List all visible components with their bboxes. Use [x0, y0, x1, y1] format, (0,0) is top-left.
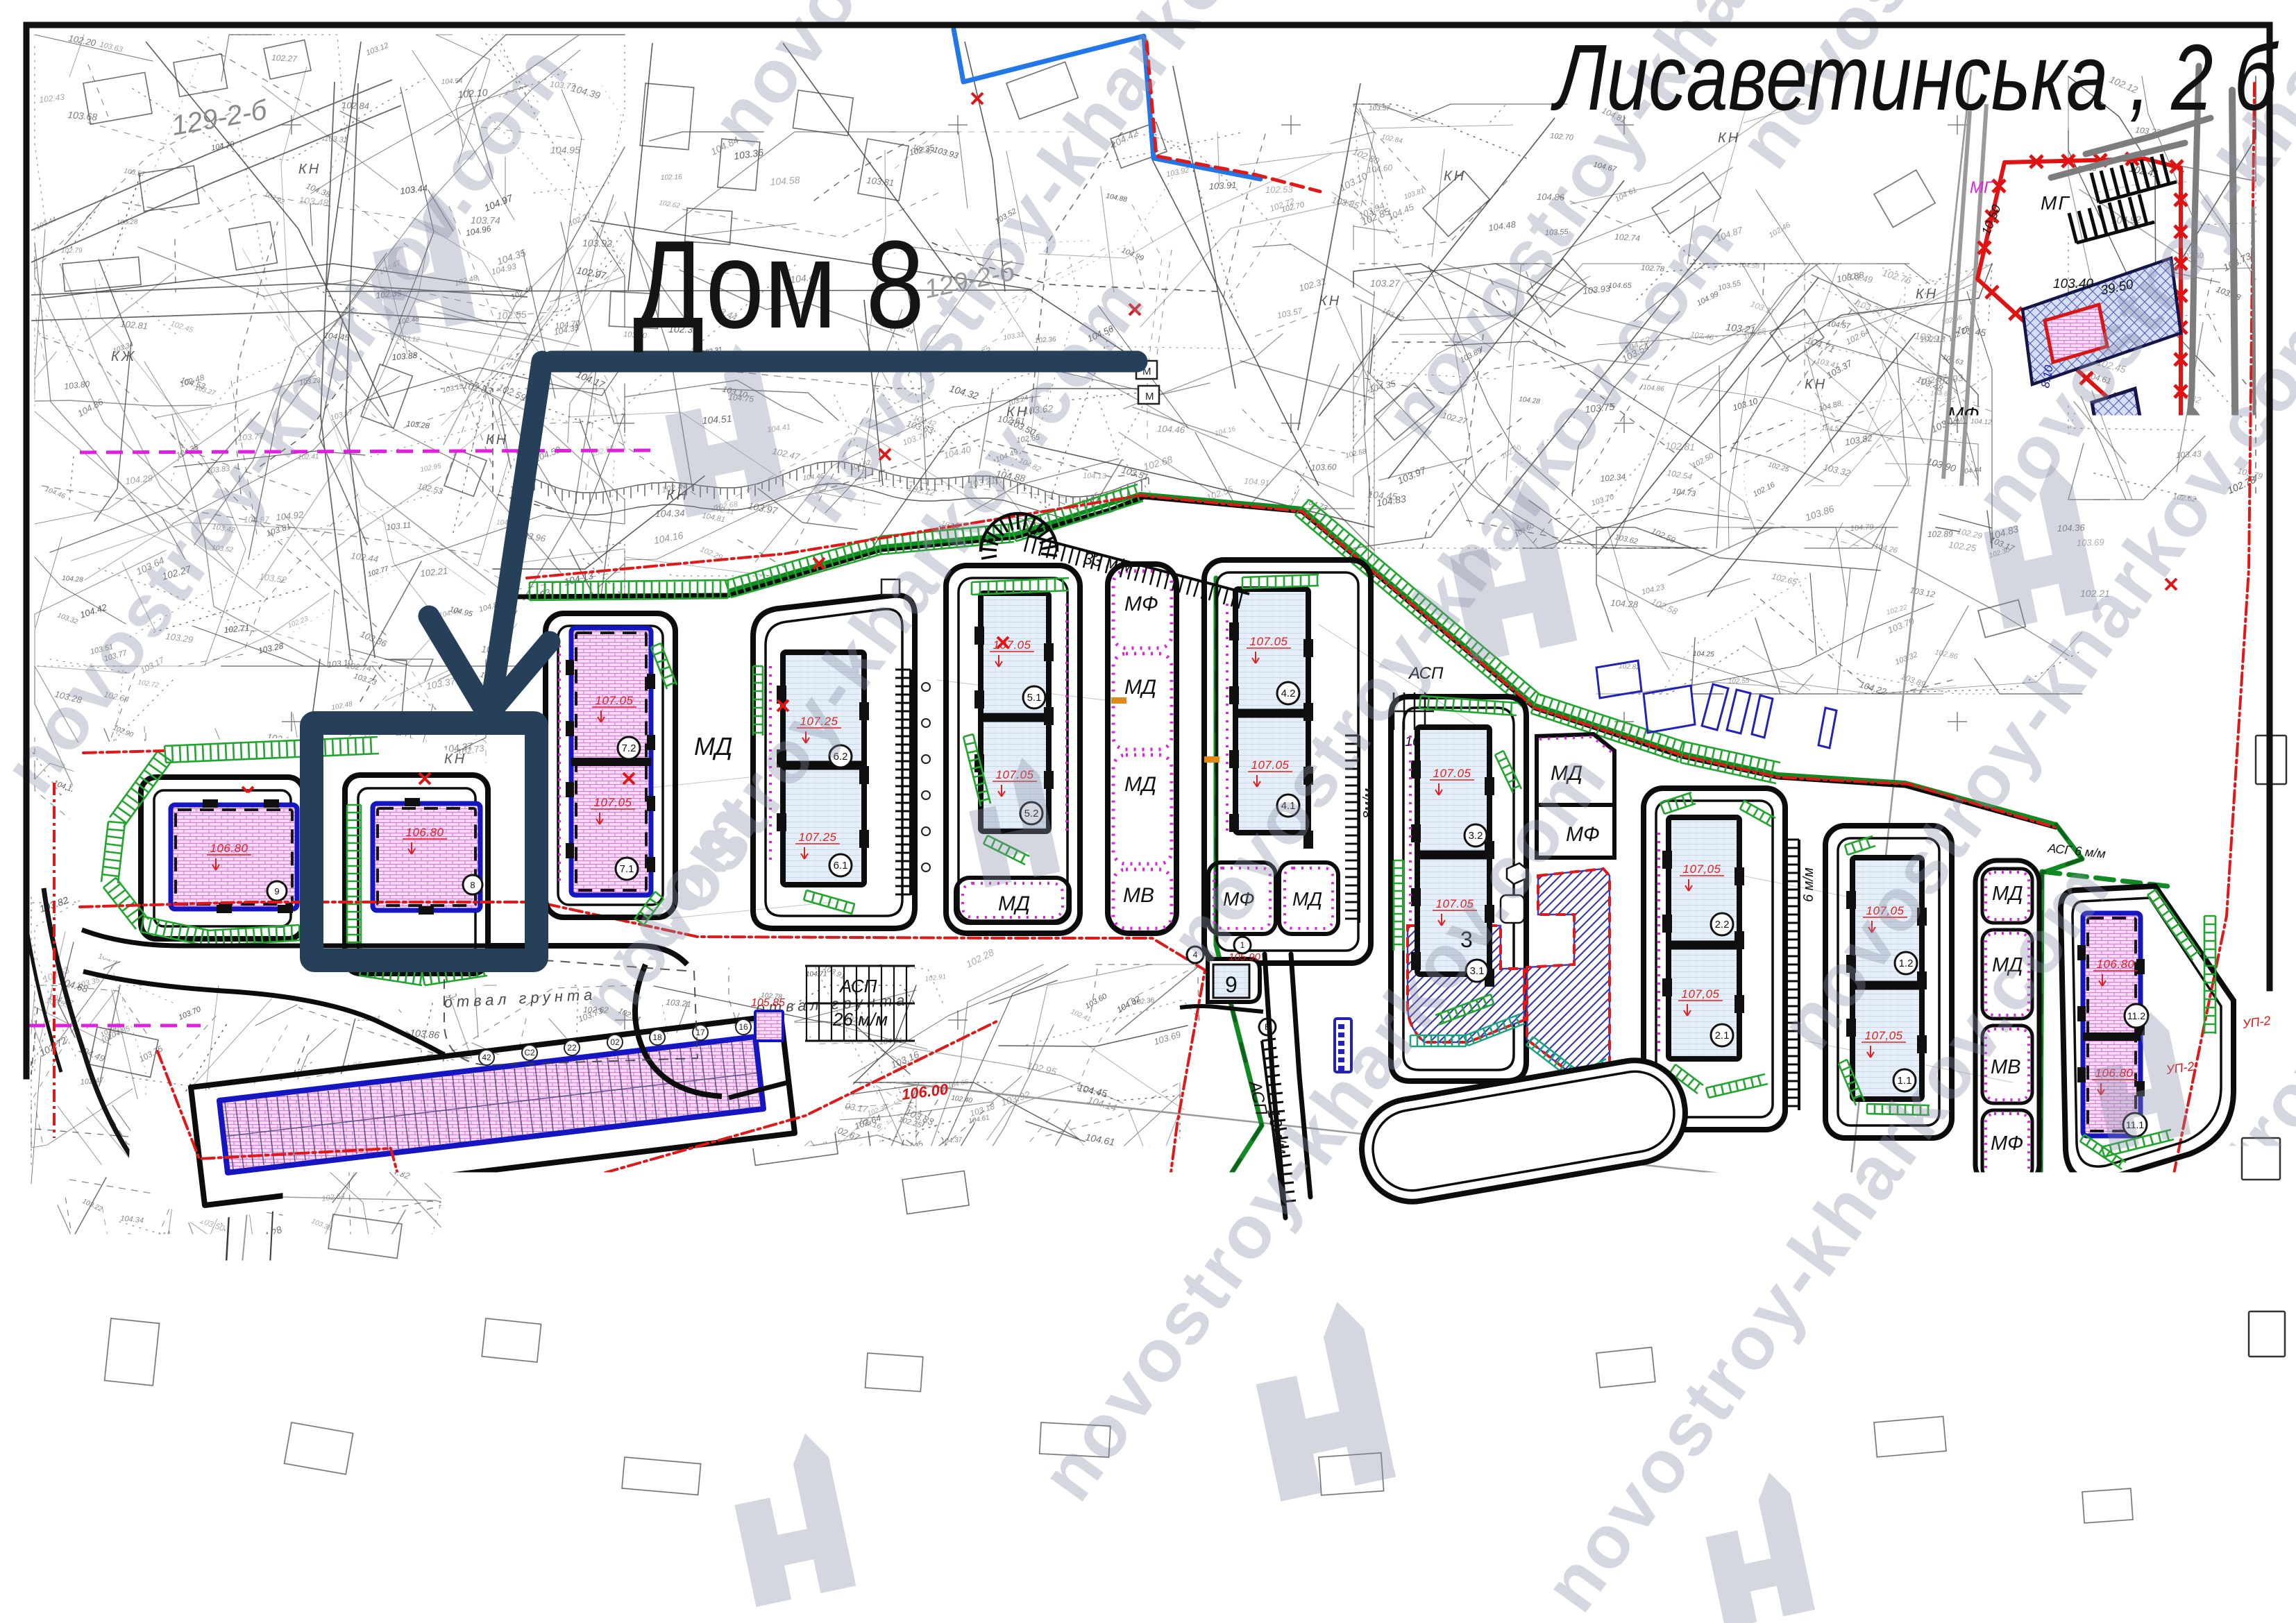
svg-text:МФ: МФ — [1991, 1132, 2023, 1155]
svg-text:Дом 8: Дом 8 — [633, 215, 925, 355]
svg-text:17: 17 — [695, 1028, 705, 1037]
svg-text:КН: КН — [1916, 287, 1938, 302]
svg-text:8: 8 — [470, 880, 475, 890]
svg-text:103.57: 103.57 — [1369, 105, 1390, 112]
svg-text:18: 18 — [652, 1033, 662, 1042]
svg-text:104.54: 104.54 — [441, 77, 464, 86]
svg-text:Лисаветинська , 2 б: Лисаветинська , 2 б — [1551, 25, 2279, 130]
svg-text:МД: МД — [1124, 676, 1156, 699]
svg-text:1: 1 — [1707, 1121, 1712, 1130]
svg-text:105.85: 105.85 — [751, 997, 785, 1009]
svg-text:103.40: 103.40 — [2053, 277, 2094, 291]
svg-text:МН: МН — [2048, 1418, 2073, 1433]
svg-text:МФ: МФ — [1124, 593, 1158, 615]
svg-text:КН: КН — [486, 432, 508, 448]
svg-text:МГ: МГ — [1970, 178, 1994, 197]
svg-text:106.80: 106.80 — [406, 826, 444, 839]
svg-text:102.49: 102.49 — [491, 1417, 514, 1426]
svg-text:103.54: 103.54 — [175, 1442, 205, 1454]
svg-text:107,05: 107,05 — [1683, 863, 1721, 876]
svg-text:104.28: 104.28 — [1610, 597, 1639, 610]
svg-text:МД: МД — [1124, 773, 1156, 796]
svg-text:КН: КН — [1805, 377, 1827, 392]
svg-text:АСП: АСП — [1490, 1171, 1527, 1192]
svg-text:2.1: 2.1 — [1715, 1030, 1730, 1042]
svg-text:КЖ: КЖ — [174, 1418, 199, 1433]
svg-text:103.60: 103.60 — [1311, 462, 1337, 473]
svg-text:6 м/м: 6 м/м — [1801, 867, 1816, 902]
svg-text:МН: МН — [1860, 1293, 1886, 1308]
svg-text:16: 16 — [738, 1022, 748, 1032]
svg-text:102.55: 102.55 — [1728, 677, 1750, 686]
svg-text:32м/м: 32м/м — [1476, 1193, 1519, 1212]
svg-text:9: 9 — [1225, 972, 1238, 997]
svg-text:104.23: 104.23 — [40, 1421, 64, 1431]
svg-text:104.85: 104.85 — [1815, 1340, 1841, 1350]
svg-text:102.63: 102.63 — [881, 1577, 909, 1588]
svg-text:106.00: 106.00 — [1673, 1148, 1707, 1160]
svg-text:104.98: 104.98 — [2082, 1379, 2106, 1388]
svg-text:102.55: 102.55 — [496, 309, 527, 321]
svg-text:104.34: 104.34 — [655, 507, 685, 519]
svg-text:2.2: 2.2 — [1715, 919, 1730, 931]
svg-text:КН: КН — [444, 751, 466, 767]
svg-text:106.80: 106.80 — [2097, 958, 2135, 971]
svg-text:11.2: 11.2 — [2127, 1010, 2145, 1021]
svg-text:103.53: 103.53 — [52, 1496, 76, 1506]
svg-text:103.28: 103.28 — [1006, 1411, 1027, 1420]
svg-text:103.64: 103.64 — [1486, 1389, 1514, 1402]
svg-text:104.46: 104.46 — [1157, 423, 1185, 435]
svg-text:104.95: 104.95 — [550, 144, 580, 155]
svg-text:8м/м: 8м/м — [1361, 788, 1376, 819]
svg-text:9: 9 — [1733, 1197, 1738, 1207]
svg-text:103.92: 103.92 — [582, 237, 612, 249]
svg-text:107.05: 107.05 — [596, 694, 634, 707]
svg-text:103.64: 103.64 — [1961, 1574, 1984, 1583]
svg-text:8: 8 — [1688, 1159, 1701, 1185]
svg-text:102.27: 102.27 — [271, 53, 298, 64]
svg-text:107.05: 107.05 — [1250, 635, 1288, 648]
svg-text:5.1: 5.1 — [1027, 692, 1042, 704]
svg-text:104.58: 104.58 — [1738, 262, 1760, 271]
svg-text:102.37: 102.37 — [273, 1249, 295, 1258]
svg-text:МГ: МГ — [2041, 192, 2070, 214]
svg-text:104.71: 104.71 — [806, 970, 827, 978]
svg-text:104.52: 104.52 — [902, 1220, 931, 1232]
svg-text:102.84: 102.84 — [341, 100, 369, 111]
svg-text:107.05: 107.05 — [1433, 767, 1471, 780]
svg-text:103.38: 103.38 — [853, 1529, 879, 1538]
svg-text:107,05: 107,05 — [1865, 1029, 1903, 1042]
svg-text:104.38: 104.38 — [850, 1221, 875, 1230]
svg-text:104.80: 104.80 — [687, 1567, 717, 1579]
svg-text:102.16: 102.16 — [661, 173, 682, 182]
svg-text:МД: МД — [1292, 888, 1322, 910]
svg-text:9: 9 — [274, 886, 279, 897]
svg-text:103.18: 103.18 — [1469, 1375, 1495, 1386]
svg-text:104.10: 104.10 — [577, 1533, 605, 1546]
svg-text:6.1: 6.1 — [834, 860, 848, 872]
svg-text:102.25: 102.25 — [1387, 1493, 1418, 1504]
svg-text:104.31: 104.31 — [928, 1159, 954, 1171]
svg-text:102.53: 102.53 — [1265, 184, 1294, 195]
svg-text:104.25: 104.25 — [1693, 650, 1714, 658]
svg-text:42: 42 — [482, 1053, 491, 1062]
svg-text:МВ: МВ — [1123, 884, 1154, 907]
svg-text:104.51: 104.51 — [1821, 425, 1843, 433]
svg-text:КН: КН — [298, 162, 321, 177]
svg-text:107.05: 107.05 — [594, 796, 632, 809]
svg-text:4: 4 — [1665, 1126, 1670, 1136]
svg-text:7.1: 7.1 — [620, 863, 634, 875]
svg-text:106.80: 106.80 — [210, 842, 248, 855]
svg-text:102.18: 102.18 — [180, 1275, 208, 1288]
svg-text:4.2: 4.2 — [1281, 688, 1296, 699]
svg-text:КЖ: КЖ — [111, 349, 136, 364]
svg-text:7.2: 7.2 — [622, 742, 636, 754]
svg-text:107,05: 107,05 — [1682, 987, 1720, 1001]
svg-text:103.91: 103.91 — [1208, 180, 1236, 192]
svg-text:104.51: 104.51 — [702, 413, 732, 426]
svg-text:104.13: 104.13 — [1083, 472, 1107, 481]
svg-text:М: М — [1145, 391, 1154, 402]
svg-text:МФ: МФ — [1948, 403, 1980, 425]
svg-text:МД: МД — [1877, 485, 1909, 508]
svg-text:104.58: 104.58 — [770, 174, 800, 187]
svg-text:МН: МН — [1569, 1307, 1594, 1322]
svg-text:КН: КН — [937, 1459, 959, 1475]
svg-text:102.74: 102.74 — [1614, 232, 1641, 244]
svg-text:107.25: 107.25 — [799, 831, 837, 844]
svg-text:103.27: 103.27 — [1370, 278, 1401, 289]
svg-text:КН: КН — [1444, 169, 1466, 184]
svg-text:МД: МД — [694, 732, 732, 760]
svg-text:КН: КН — [1319, 294, 1341, 309]
svg-text:102.49: 102.49 — [237, 1354, 261, 1363]
svg-text:104.23: 104.23 — [1526, 1353, 1555, 1363]
